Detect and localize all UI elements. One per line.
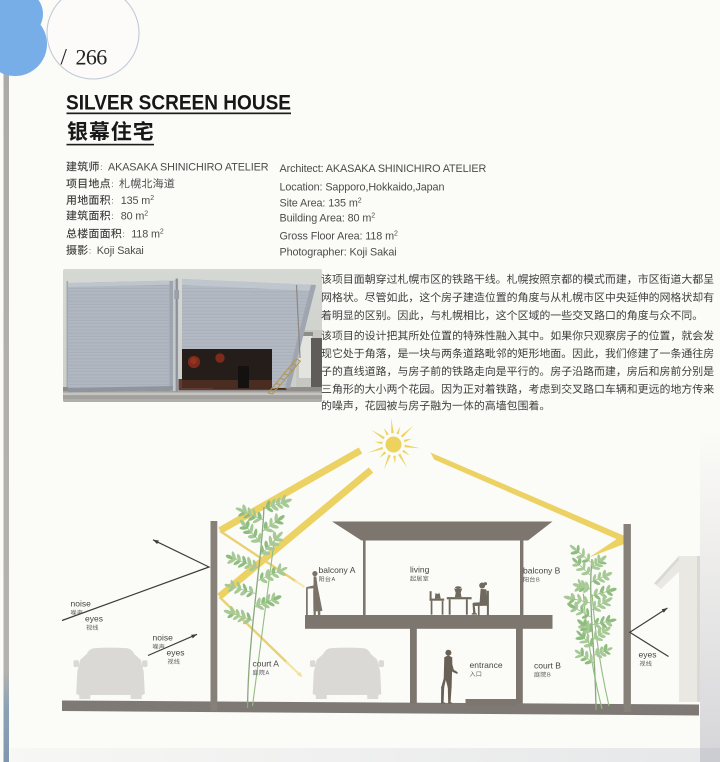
svg-text:Site Area: 135 m2: Site Area: 135 m2 [280, 198, 362, 210]
svg-text:Architect: AKASAKA SHINICHIRO: Architect: AKASAKA SHINICHIRO ATELIER [280, 163, 487, 175]
svg-text:entrance: entrance [470, 660, 503, 670]
svg-text:/: / [61, 45, 68, 70]
svg-text:B: B [547, 673, 551, 679]
svg-text:266: 266 [76, 45, 108, 70]
svg-text:balcony A: balcony A [319, 565, 356, 575]
svg-text:Gross Floor Area: 118 m2: Gross Floor Area: 118 m2 [280, 231, 399, 243]
svg-text:Location: Sapporo,Hokkaido,Jap: Location: Sapporo,Hokkaido,Japan [280, 182, 445, 194]
svg-text:A: A [332, 577, 336, 583]
svg-text:noise: noise [71, 599, 92, 609]
svg-text:B: B [536, 578, 540, 584]
svg-text:SILVER SCREEN HOUSE: SILVER SCREEN HOUSE [66, 92, 291, 115]
svg-text::: : [111, 196, 113, 206]
svg-text::: : [111, 179, 113, 189]
svg-text:eyes: eyes [167, 648, 185, 658]
svg-text:135 m2: 135 m2 [121, 195, 155, 207]
svg-text:court B: court B [534, 661, 561, 671]
svg-text:court A: court A [253, 659, 280, 669]
svg-text:Koji Sakai: Koji Sakai [97, 245, 144, 257]
svg-text::: : [89, 246, 91, 256]
svg-text:noise: noise [153, 633, 174, 643]
svg-text:80 m2: 80 m2 [121, 211, 149, 223]
svg-text::: : [111, 211, 113, 221]
svg-text:eyes: eyes [85, 614, 103, 624]
svg-text:118 m2: 118 m2 [131, 229, 164, 241]
svg-text:AKASAKA SHINICHIRO ATELIER: AKASAKA SHINICHIRO ATELIER [108, 162, 269, 174]
svg-text:balcony B: balcony B [523, 566, 561, 576]
svg-text::: : [123, 229, 125, 239]
svg-text:Photographer: Koji Sakai: Photographer: Koji Sakai [280, 247, 397, 259]
svg-text:A: A [266, 671, 270, 677]
svg-text:living: living [410, 565, 430, 575]
svg-text:eyes: eyes [639, 650, 657, 660]
svg-text::: : [100, 162, 102, 172]
svg-text:Building Area: 80 m2: Building Area: 80 m2 [280, 213, 376, 225]
